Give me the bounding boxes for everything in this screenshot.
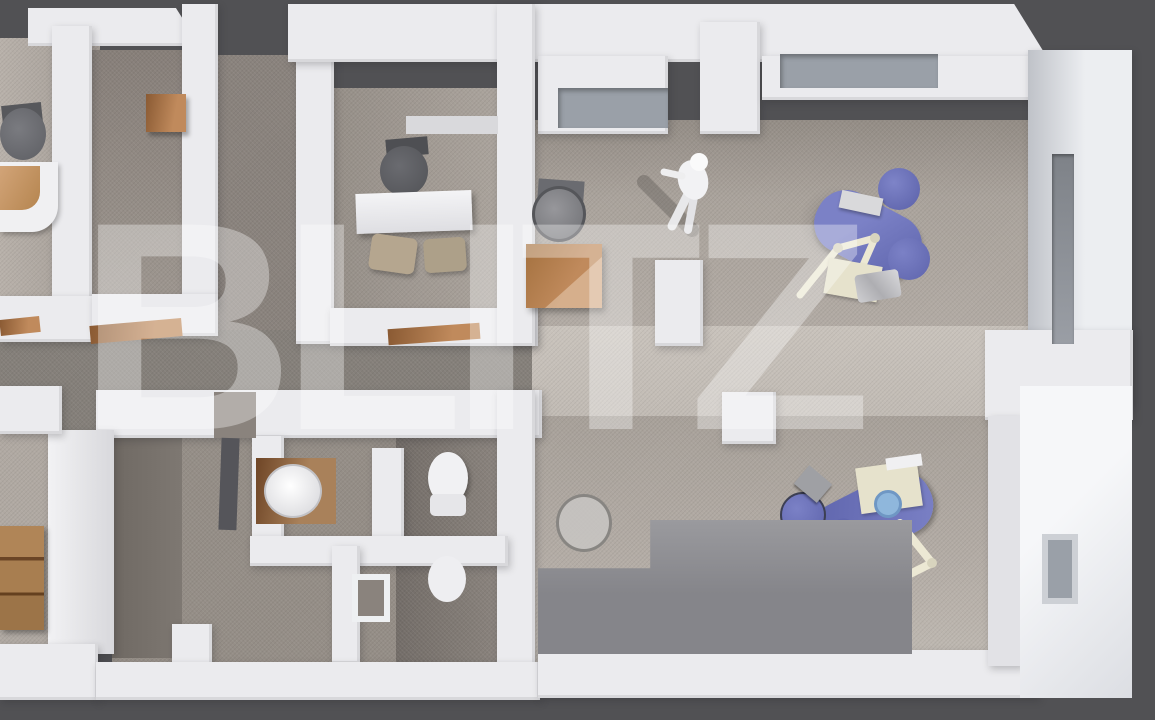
- floor-room-shadowed: [214, 55, 298, 355]
- wall-h-bath-top: [96, 390, 542, 438]
- wall-v-office-left: [52, 26, 92, 314]
- wall-storage-top: [0, 386, 62, 434]
- wooden-cabinet: [0, 526, 44, 630]
- wall-right-bottom-v: [988, 416, 1022, 666]
- toilet-2-bowl: [428, 556, 466, 602]
- wall-bottom-right: [538, 650, 1038, 698]
- door-leaf-dark: [218, 438, 239, 531]
- wall-partition-cube: [722, 392, 776, 444]
- shower-frame: [352, 574, 390, 622]
- desk-chair: [380, 146, 428, 196]
- wall-v-storage: [48, 430, 114, 654]
- office-chair: [0, 108, 46, 160]
- ghost-chair: [556, 494, 612, 552]
- visitor-chair-1: [368, 233, 419, 275]
- wall-shelf: [146, 94, 186, 132]
- wall-h-bath-mid: [250, 536, 508, 566]
- office-desk: [355, 190, 472, 234]
- wall-bottom-mid: [96, 662, 540, 700]
- office-cabinet: [406, 116, 498, 134]
- visitor-chair-2: [423, 237, 467, 274]
- standing-person: [636, 142, 732, 242]
- wall-top-pillar: [700, 22, 760, 134]
- dental-unit-1: [780, 150, 950, 320]
- wall-v-center-bottom: [497, 390, 535, 672]
- window-slot-right: [1052, 154, 1074, 344]
- floor-light-band: [532, 326, 1032, 422]
- window-recess-1: [558, 88, 668, 128]
- window-recess-2: [780, 54, 938, 88]
- doorway-gap: [214, 392, 256, 438]
- toilet-1-seat: [430, 494, 466, 516]
- round-sink: [264, 464, 322, 518]
- reception-chair: [532, 186, 586, 242]
- wall-v-meeting: [182, 4, 218, 306]
- dental-chair-1-headrest: [878, 168, 920, 210]
- reception-desk-wood-top: [0, 166, 40, 210]
- wall-v-bath-2: [372, 448, 404, 550]
- wall-v-private-office: [296, 50, 334, 344]
- window-right-bottom: [1042, 534, 1078, 604]
- wall-center-stub: [655, 260, 703, 346]
- wall-bottom-left: [0, 644, 98, 700]
- floor-plan-render: BLITZ: [0, 0, 1155, 720]
